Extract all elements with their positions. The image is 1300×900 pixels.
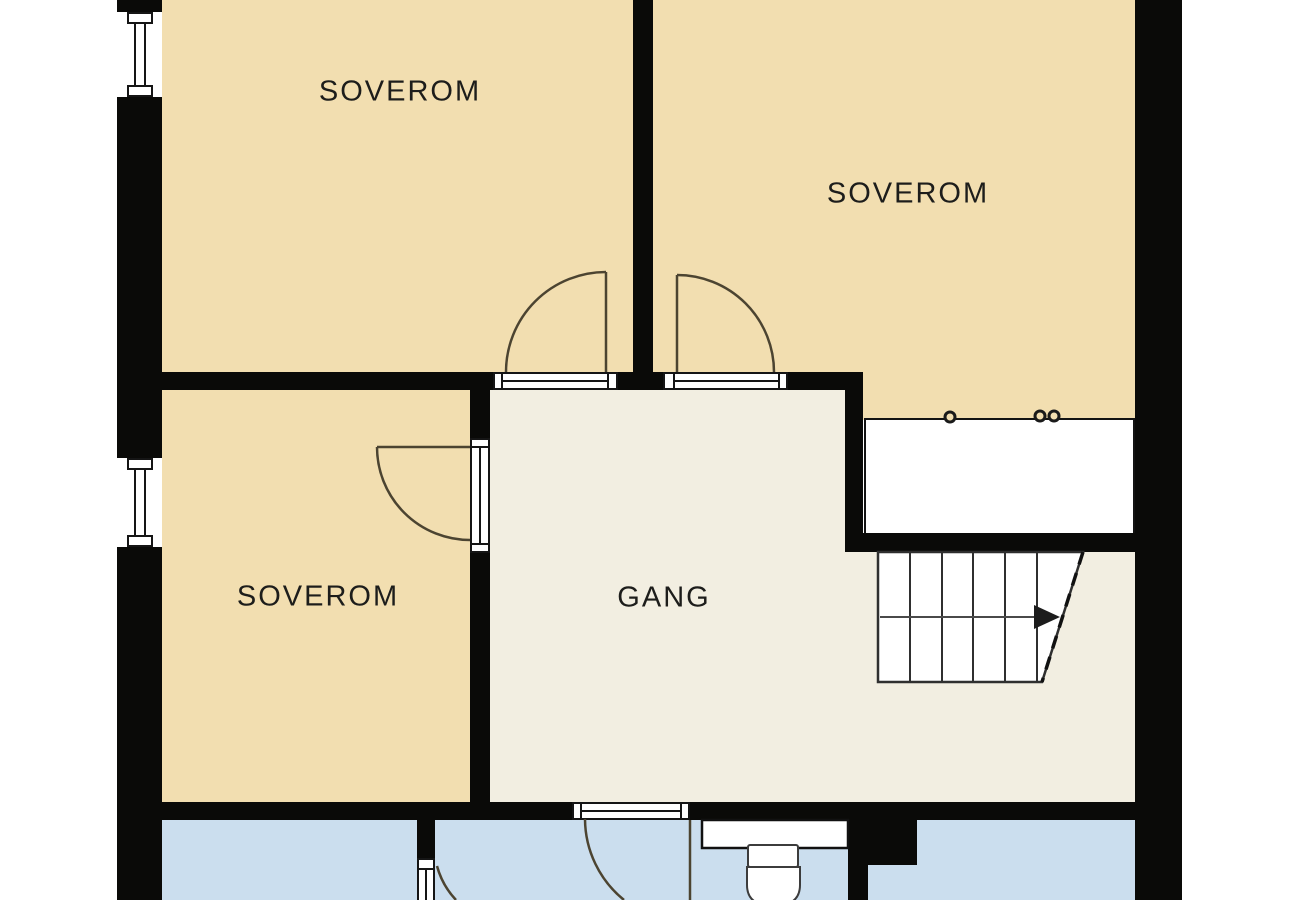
door-threshold (470, 448, 490, 543)
wall-segment (848, 865, 868, 900)
wall-segment (845, 533, 1135, 552)
door-threshold-end (778, 372, 788, 390)
wall-segment (1135, 0, 1182, 900)
wall-segment (417, 818, 435, 858)
closet (864, 418, 1135, 535)
wall-segment (470, 553, 490, 802)
window-sill (127, 12, 153, 24)
door-threshold (503, 372, 607, 390)
door-threshold-end (493, 372, 503, 390)
door-threshold-end (572, 802, 582, 820)
door-threshold-end (607, 372, 618, 390)
door-threshold-end (470, 543, 490, 553)
bath-room-right-floor-ext (868, 865, 1135, 900)
window-sill (127, 85, 153, 97)
wall-segment (633, 0, 653, 378)
door-threshold-end (470, 438, 490, 448)
wall-segment (162, 802, 572, 820)
room-label-soverom-top-right: SOVEROM (827, 178, 989, 211)
stair-landing-floor (845, 552, 1135, 802)
bath-room-left-floor (162, 820, 417, 900)
wall-segment (117, 97, 162, 458)
door-threshold-end (417, 858, 435, 870)
bath-room-center-floor (435, 818, 848, 900)
door-threshold (675, 372, 778, 390)
wall-segment (788, 372, 863, 390)
wall-segment (470, 390, 490, 438)
wall-segment (848, 817, 917, 865)
room-soverom-top-left-floor (162, 0, 633, 372)
window-sill (127, 458, 153, 470)
window-sill (127, 535, 153, 547)
bath-room-right-floor (917, 820, 1135, 865)
wall-segment (117, 547, 162, 900)
room-label-soverom-mid-left: SOVEROM (237, 581, 399, 614)
door-threshold (582, 802, 680, 820)
door-threshold (417, 870, 435, 900)
wall-segment (618, 372, 663, 390)
door-threshold-end (663, 372, 675, 390)
floorplan-canvas: SOVEROM SOVEROM SOVEROM GANG (0, 0, 1300, 900)
wall-segment (845, 390, 863, 552)
room-soverom-top-right-floor-ext (863, 372, 1135, 420)
door-threshold-end (680, 802, 690, 820)
window-glazing (134, 470, 146, 535)
room-label-soverom-top-left: SOVEROM (319, 76, 481, 109)
room-label-gang: GANG (617, 582, 710, 615)
window-glazing (134, 24, 146, 85)
wall-segment (162, 372, 493, 390)
wall-segment (117, 0, 162, 12)
